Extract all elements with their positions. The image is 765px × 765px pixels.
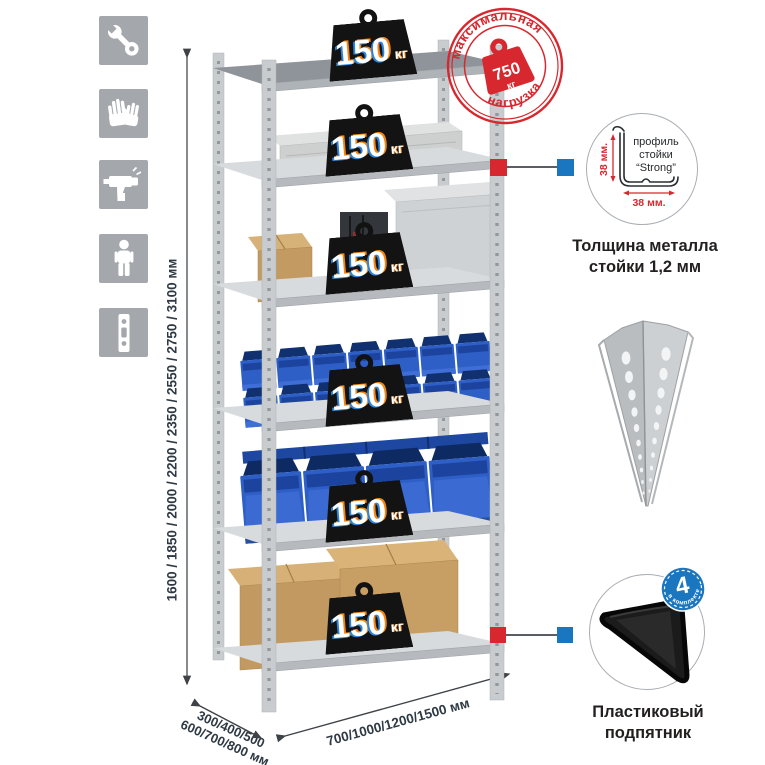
load-value: 150 bbox=[330, 605, 388, 643]
load-value: 150 bbox=[330, 493, 388, 531]
profile-callout-blue-marker bbox=[557, 159, 574, 176]
profile-text-line1: профиль bbox=[633, 136, 679, 148]
profile-horizontal-dim: 38 мм. bbox=[632, 197, 665, 209]
load-unit: кг bbox=[390, 618, 404, 635]
load-unit: кг bbox=[390, 390, 404, 407]
profile-vertical-dim: 38 мм. bbox=[598, 143, 610, 176]
profile-text-line3: “Strong” bbox=[636, 162, 676, 174]
foot-callout-line bbox=[506, 634, 557, 636]
load-value: 150 bbox=[330, 127, 388, 165]
load-unit: кг bbox=[394, 45, 408, 62]
shelf-load-label-1: 150кг bbox=[325, 18, 418, 81]
corner-post-image bbox=[596, 312, 706, 522]
shelf-load-label-4: 150кг bbox=[321, 363, 414, 426]
profile-callout-line bbox=[507, 166, 557, 168]
load-value: 150 bbox=[330, 377, 388, 415]
foot-callout-blue-marker bbox=[557, 627, 573, 643]
shelf-load-label-5: 150кг bbox=[321, 479, 414, 542]
shelf-load-label-3: 150кг bbox=[321, 231, 414, 294]
load-unit: кг bbox=[390, 140, 404, 157]
load-value: 150 bbox=[334, 32, 392, 70]
shelving-rack-infographic: 150кг 150кг 150кг 150кг 150кг 150кг макс… bbox=[0, 0, 765, 765]
shelf-load-label-2: 150кг bbox=[321, 113, 414, 176]
load-unit: кг bbox=[390, 506, 404, 523]
included-count-badge: 4 в комплекте bbox=[655, 561, 712, 618]
post-profile-detail-circle: 38 мм. 38 мм. профиль стойки “Strong” bbox=[586, 113, 698, 225]
foot-callout-red-marker bbox=[490, 627, 506, 643]
load-unit: кг bbox=[390, 258, 404, 275]
shelf-load-label-6: 150кг bbox=[321, 591, 414, 654]
profile-callout-red-marker bbox=[490, 159, 507, 176]
profile-text-line2: стойки bbox=[639, 149, 673, 161]
load-value: 150 bbox=[330, 245, 388, 283]
